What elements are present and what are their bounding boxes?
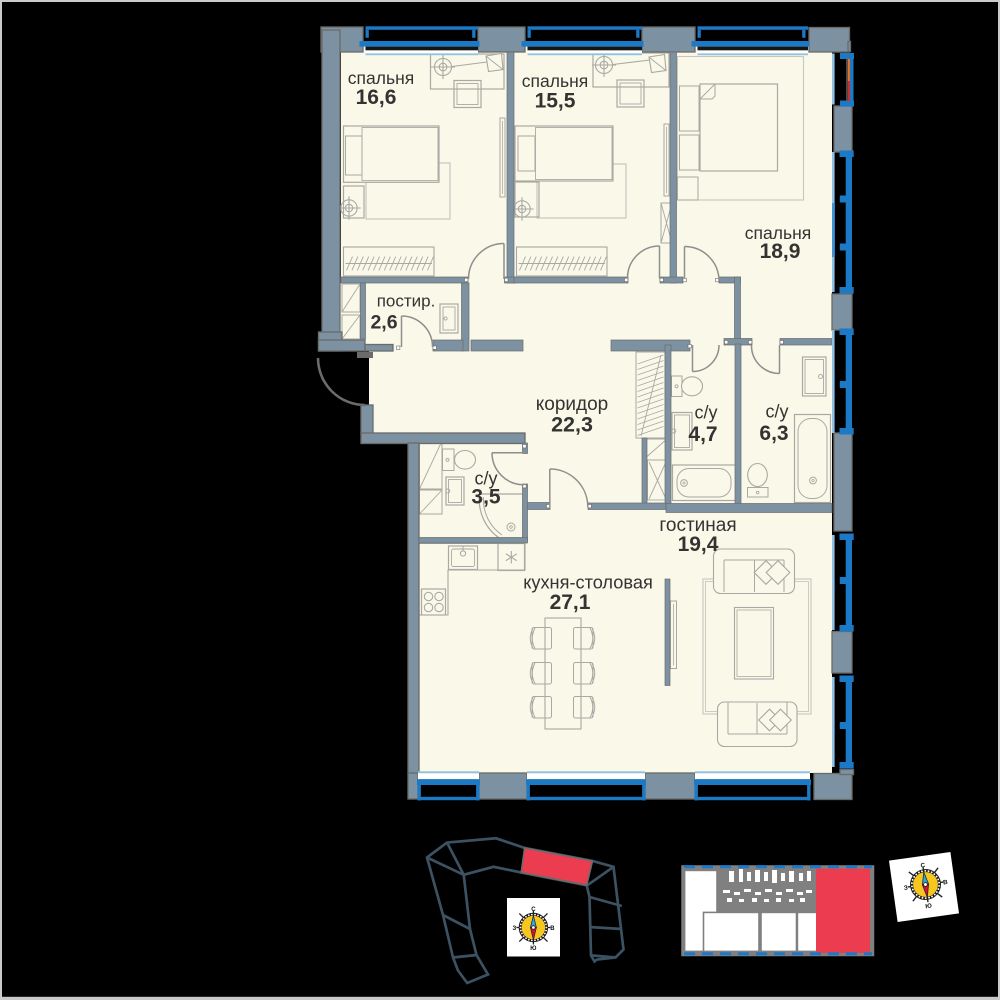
svg-text:кухня-столовая: кухня-столовая: [523, 573, 653, 593]
svg-text:16,6: 16,6: [356, 86, 397, 109]
svg-text:19,4: 19,4: [678, 533, 719, 556]
svg-text:Ю: Ю: [530, 946, 536, 952]
svg-text:15,5: 15,5: [535, 90, 576, 113]
svg-text:спальня: спальня: [522, 71, 588, 91]
svg-text:6,3: 6,3: [759, 422, 788, 445]
svg-text:с/у: с/у: [694, 403, 717, 423]
svg-text:В: В: [550, 926, 555, 932]
svg-text:3,5: 3,5: [471, 486, 501, 509]
svg-text:22,3: 22,3: [551, 413, 593, 437]
svg-text:2,6: 2,6: [370, 312, 397, 334]
svg-text:З: З: [513, 926, 517, 932]
svg-text:постир.: постир.: [377, 292, 436, 311]
svg-text:4,7: 4,7: [688, 423, 717, 446]
svg-text:27,1: 27,1: [550, 591, 591, 614]
svg-text:18,9: 18,9: [760, 240, 801, 263]
svg-text:спальня: спальня: [348, 68, 414, 88]
svg-text:с/у: с/у: [765, 402, 788, 422]
svg-text:С: С: [531, 907, 536, 913]
